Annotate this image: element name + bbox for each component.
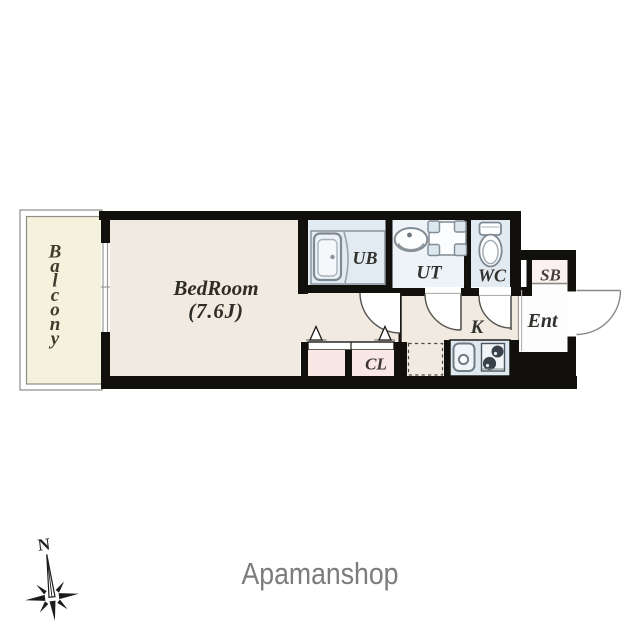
svg-text:UT: UT bbox=[416, 263, 443, 284]
svg-text:Ent: Ent bbox=[526, 310, 558, 332]
svg-text:SB: SB bbox=[540, 266, 561, 285]
svg-text:(7.6J): (7.6J) bbox=[188, 299, 244, 323]
svg-text:CL: CL bbox=[365, 355, 387, 374]
svg-text:WC: WC bbox=[478, 266, 507, 286]
svg-text:UB: UB bbox=[352, 248, 377, 268]
svg-text:Apamanshop: Apamanshop bbox=[242, 556, 399, 591]
svg-text:y: y bbox=[49, 329, 60, 350]
svg-text:K: K bbox=[470, 317, 485, 338]
svg-text:BedRoom: BedRoom bbox=[172, 276, 258, 300]
